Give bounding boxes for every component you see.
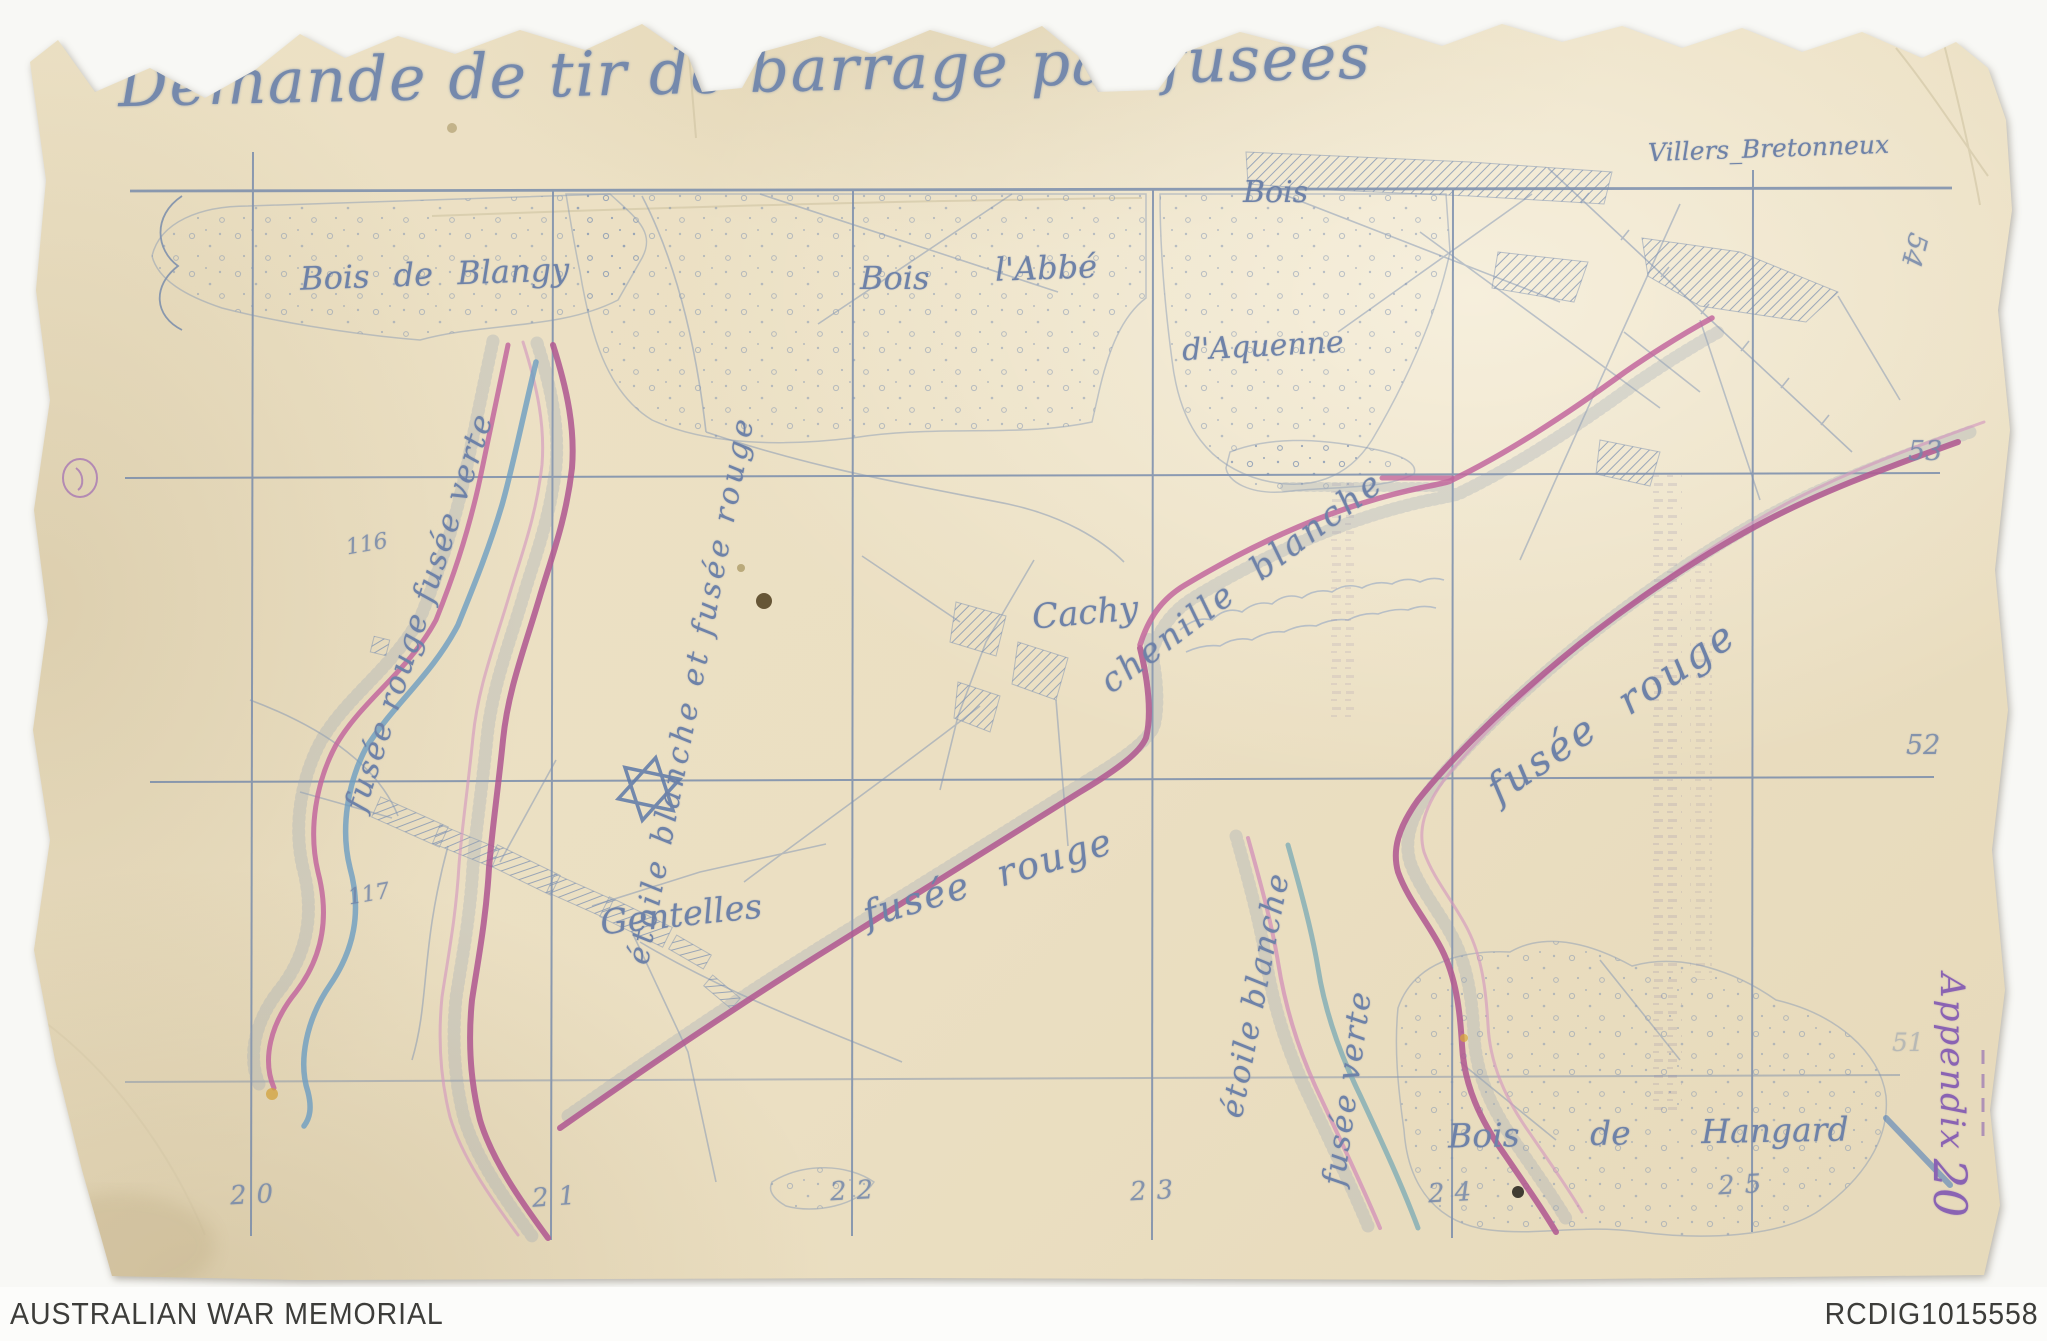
corner-smudge (25, 1193, 215, 1297)
scanned-map-page: Demande de tir de barrage par fusées Vil… (0, 0, 2047, 1341)
grid-label-54-rotated: 54 (1897, 230, 1932, 270)
place-label-bois-de-blangy: Bois de Blangy (300, 253, 570, 294)
margin-circled-mark (63, 459, 97, 497)
grid-label-22: 22 (829, 1177, 883, 1206)
grid-label-51: 51 (1892, 1030, 1924, 1055)
place-label-cachy: Cachy (1031, 591, 1140, 634)
place-label-bois-de-hangard: Bois de Hangard (1448, 1113, 1849, 1153)
footer-reference-id: RCDIG1015558 (1825, 1296, 2039, 1332)
grid-label-25: 25 (1717, 1171, 1771, 1200)
cachy-buildings (950, 602, 1006, 656)
grid-label-21: 21 (531, 1182, 586, 1212)
appendix-stamp-word: Appendix (1935, 973, 1969, 1151)
grid-label-24: 24 (1427, 1179, 1481, 1208)
grid-label-23: 23 (1129, 1177, 1183, 1206)
grid-label-52: 52 (1906, 732, 1940, 759)
paper-sheet: Demande de tir de barrage par fusées Vil… (0, 0, 2047, 1341)
wood-bois-labbe (566, 194, 1146, 443)
footer-institution: AUSTRALIAN WAR MEMORIAL (10, 1296, 444, 1332)
place-label-bois-daquenne-word1: Bois (1243, 178, 1308, 208)
grid-label-53: 53 (1908, 438, 1942, 465)
place-label-bois-labbe-word1: Bois (860, 262, 929, 294)
place-label-bois-labbe-word2: l'Abbé (994, 250, 1097, 286)
paper-sheet-wrap: Demande de tir de barrage par fusées Vil… (0, 0, 2047, 1341)
place-label-bois-daquenne-word2: d'Aquenne (1181, 328, 1344, 366)
grid-label-20: 20 (229, 1181, 283, 1210)
footer-bar: AUSTRALIAN WAR MEMORIAL RCDIG1015558 (0, 1287, 2047, 1341)
appendix-stamp-number: 20 (1927, 1159, 1973, 1218)
